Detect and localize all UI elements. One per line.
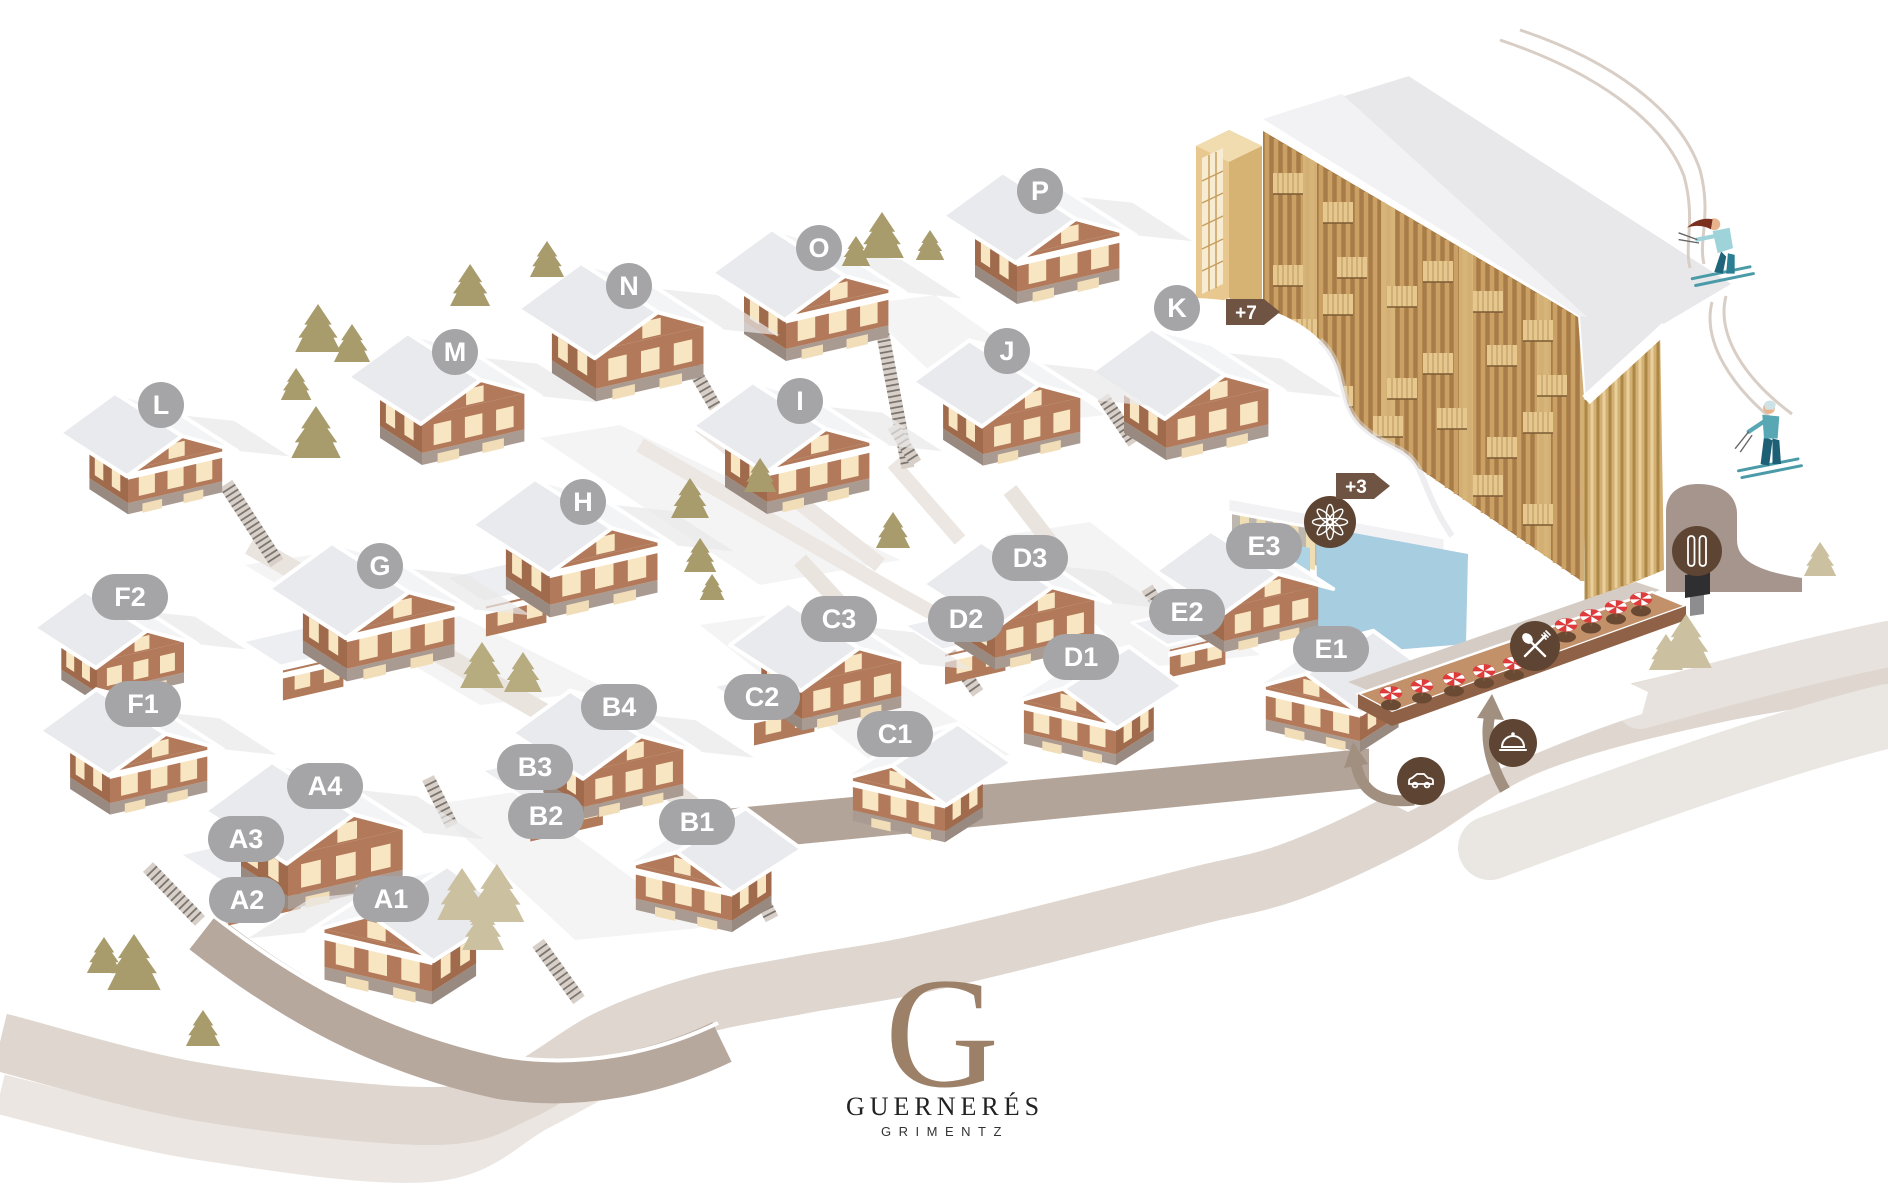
svg-text:GRIMENTZ: GRIMENTZ — [881, 1124, 1009, 1139]
svg-text:P: P — [1031, 176, 1049, 206]
svg-text:GUERNERÉS: GUERNERÉS — [846, 1092, 1044, 1121]
svg-text:N: N — [619, 271, 639, 301]
svg-text:J: J — [999, 336, 1014, 366]
svg-text:B2: B2 — [529, 801, 564, 831]
svg-text:A2: A2 — [230, 885, 265, 915]
svg-text:O: O — [808, 233, 829, 263]
svg-text:H: H — [573, 487, 593, 517]
svg-text:B1: B1 — [680, 807, 715, 837]
svg-text:A3: A3 — [229, 824, 264, 854]
svg-text:E1: E1 — [1314, 634, 1347, 664]
svg-text:C3: C3 — [822, 604, 857, 634]
svg-text:B3: B3 — [518, 752, 553, 782]
svg-text:E3: E3 — [1247, 531, 1280, 561]
svg-text:F1: F1 — [127, 689, 159, 719]
svg-text:D3: D3 — [1013, 543, 1048, 573]
svg-text:A1: A1 — [374, 884, 409, 914]
svg-text:G: G — [369, 551, 390, 581]
svg-text:A4: A4 — [308, 771, 343, 801]
svg-text:D1: D1 — [1064, 642, 1099, 672]
svg-text:C1: C1 — [878, 719, 913, 749]
svg-text:C2: C2 — [745, 682, 780, 712]
svg-text:D2: D2 — [949, 604, 984, 634]
svg-text:I: I — [796, 386, 804, 416]
svg-text:+3: +3 — [1345, 477, 1367, 498]
svg-text:M: M — [444, 337, 467, 367]
svg-text:F2: F2 — [114, 582, 146, 612]
svg-text:B4: B4 — [602, 692, 637, 722]
svg-text:E2: E2 — [1170, 597, 1203, 627]
svg-text:K: K — [1167, 293, 1187, 323]
svg-text:+7: +7 — [1235, 303, 1257, 324]
svg-text:L: L — [153, 390, 170, 420]
